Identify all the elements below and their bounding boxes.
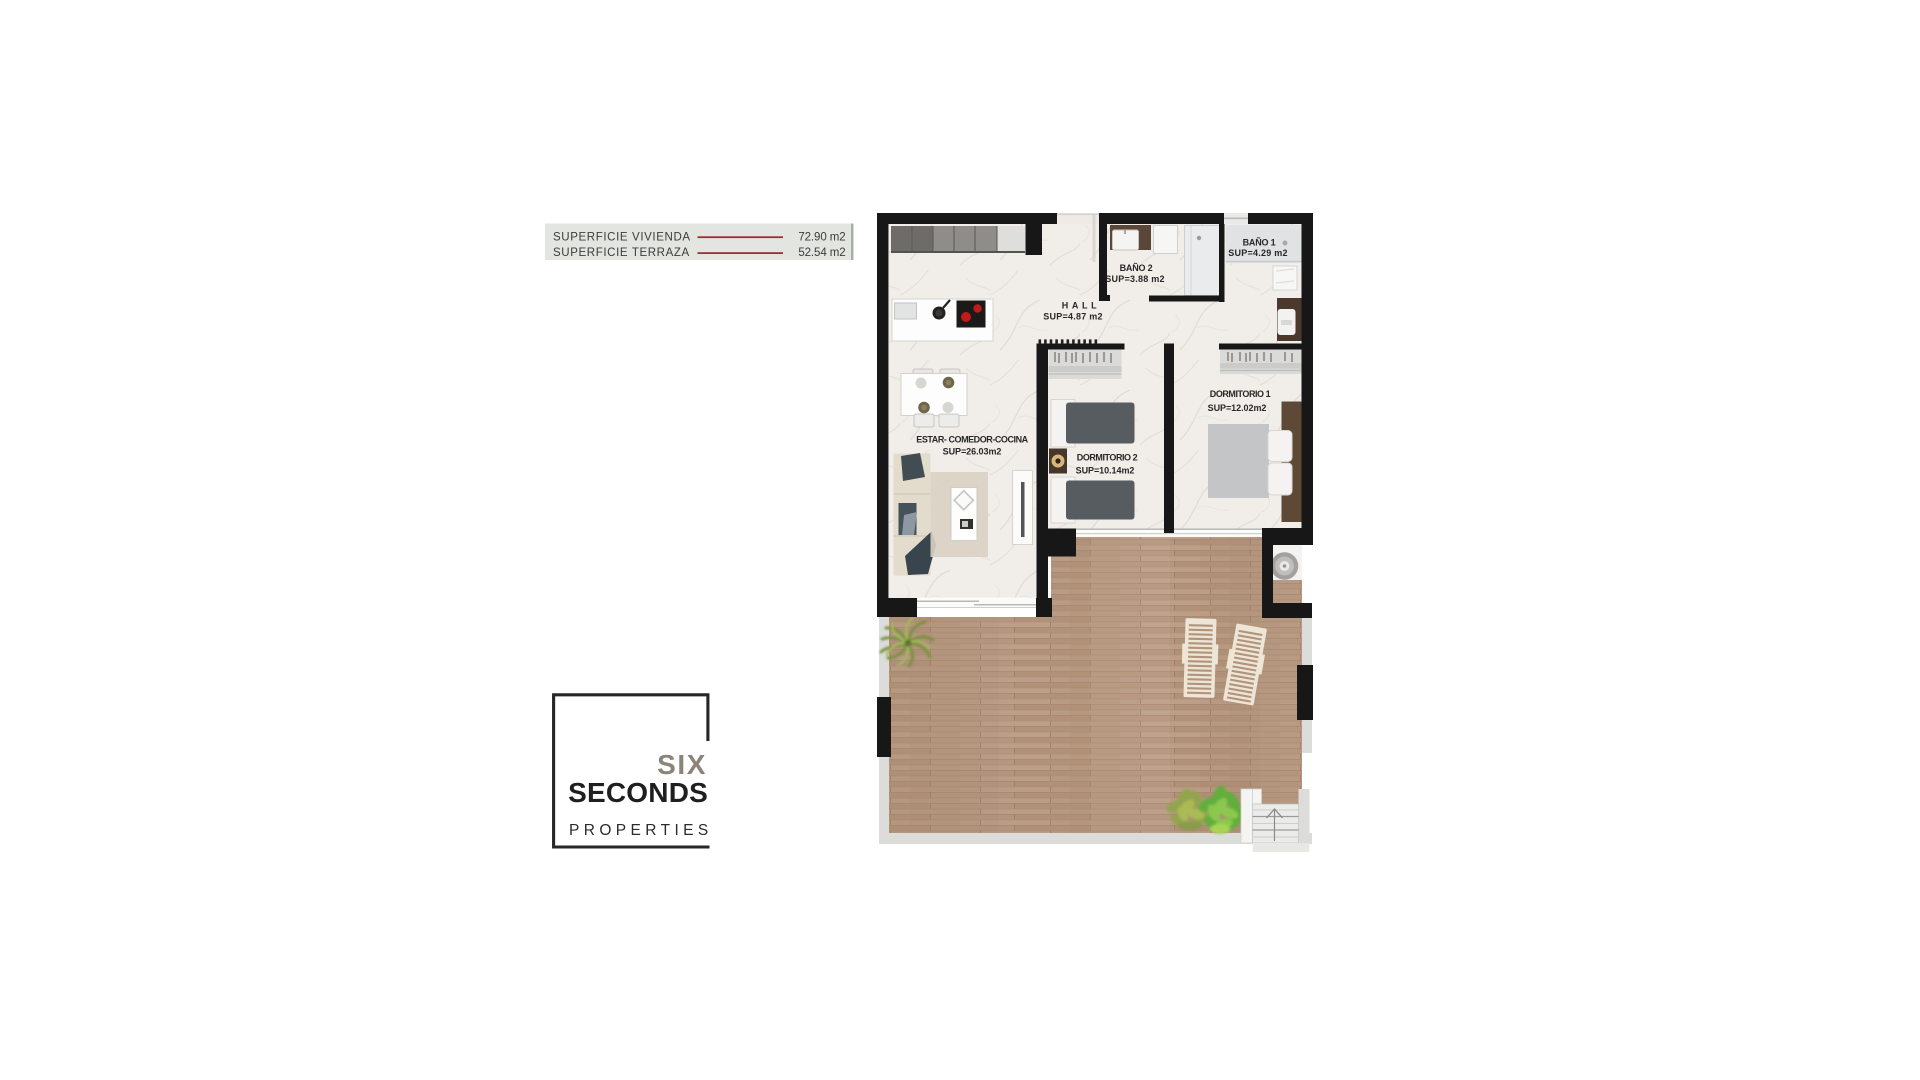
svg-text:SUP=4.29 m2: SUP=4.29 m2 [1228,248,1288,258]
svg-text:DORMITORIO 1: DORMITORIO 1 [1210,389,1271,399]
svg-text:DORMITORIO 2: DORMITORIO 2 [1077,453,1138,463]
svg-text:PROPERTIES: PROPERTIES [569,822,713,839]
svg-text:SUP=4.87 m2: SUP=4.87 m2 [1043,312,1103,322]
svg-text:BAÑO 2: BAÑO 2 [1120,263,1153,273]
svg-text:SUP=3.88 m2: SUP=3.88 m2 [1105,274,1165,284]
svg-text:SUP=12.02m2: SUP=12.02m2 [1208,403,1267,413]
svg-text:52.54 m2: 52.54 m2 [798,247,845,259]
svg-text:72.90 m2: 72.90 m2 [798,231,845,243]
svg-text:SUP=26.03m2: SUP=26.03m2 [943,447,1002,457]
svg-text:ESTAR- COMEDOR-COCINA: ESTAR- COMEDOR-COCINA [916,435,1028,445]
svg-text:SUP=10.14m2: SUP=10.14m2 [1076,466,1135,476]
svg-text:SECONDS: SECONDS [568,777,708,808]
svg-text:BAÑO 1: BAÑO 1 [1243,238,1276,248]
svg-text:HALL: HALL [1062,301,1100,311]
svg-text:SUPERFICIE TERRAZA: SUPERFICIE TERRAZA [553,247,690,259]
svg-text:SIX: SIX [657,749,707,780]
svg-text:SUPERFICIE VIVIENDA: SUPERFICIE VIVIENDA [553,231,691,243]
